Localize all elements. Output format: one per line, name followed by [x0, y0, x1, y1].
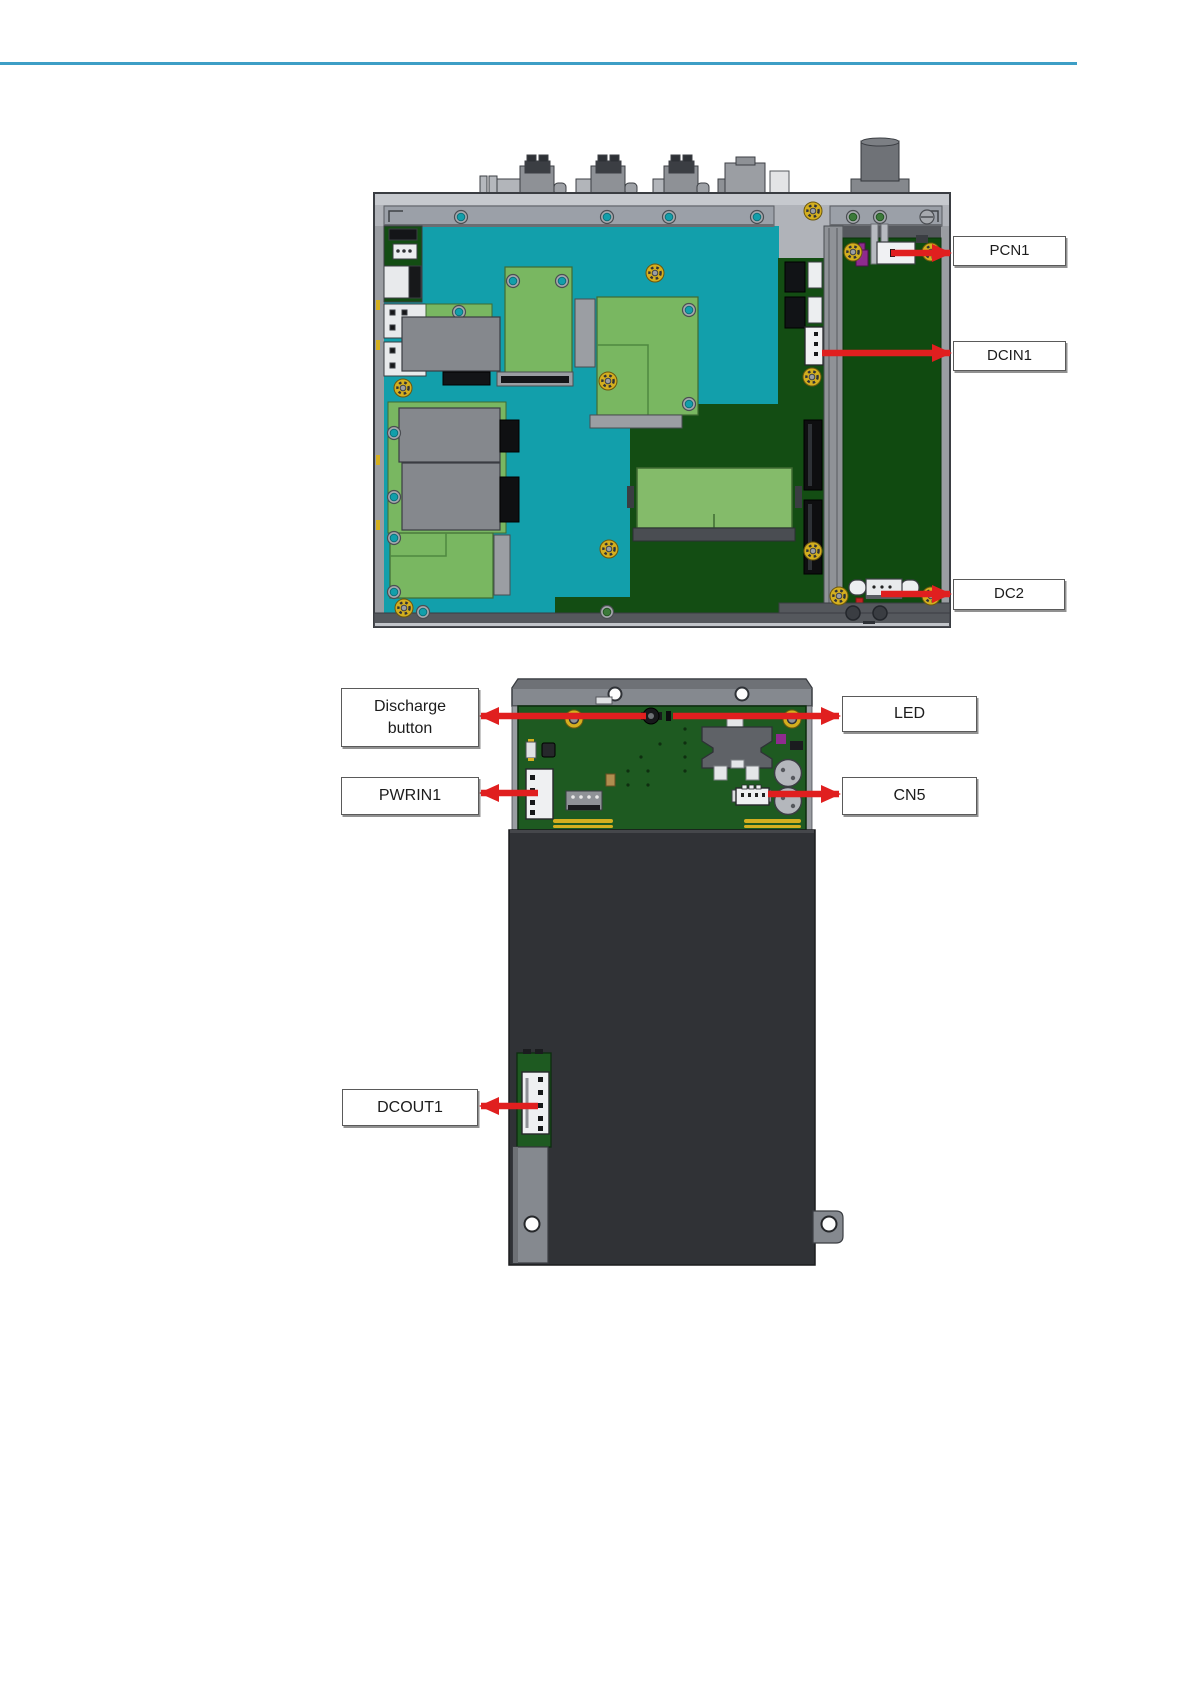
chassis-top-illustration: [0, 0, 1191, 660]
mounting-bracket-left: [513, 1147, 548, 1263]
power-board: [843, 224, 941, 608]
dcin1-connector: [805, 327, 823, 365]
callout-pwrin1: PWRIN1: [341, 777, 479, 815]
dcout1-board: [517, 1049, 551, 1147]
led-component: [666, 711, 671, 721]
cn5-connector: [732, 785, 771, 805]
figure-chassis-top-view: PCN1 DCIN1 DC2: [0, 0, 1191, 660]
callout-pcn1: PCN1: [953, 236, 1066, 266]
battery-module-illustration: [0, 660, 1191, 1300]
mounting-bracket-top: [512, 679, 812, 706]
right-side-wall: [806, 706, 812, 830]
callout-dcin1: DCIN1: [953, 341, 1066, 371]
figure-battery-module: Discharge button LED PWRIN1 CN5 DCOUT1: [0, 660, 1191, 1300]
callout-dcout1: DCOUT1: [342, 1089, 478, 1126]
battery-pack: [509, 830, 815, 1265]
purple-component: [776, 734, 786, 744]
callout-discharge-button: Discharge button: [341, 688, 479, 747]
manual-page: PCN1 DCIN1 DC2: [0, 0, 1191, 1684]
heatsink-modules: [388, 304, 520, 599]
left-side-wall: [512, 706, 518, 830]
memory-module: [627, 468, 802, 541]
callout-dc2: DC2: [953, 579, 1065, 610]
callout-cn5: CN5: [842, 777, 977, 815]
callout-led: LED: [842, 696, 977, 732]
aux-connector: [566, 791, 602, 810]
rear-io-connectors: [480, 138, 909, 196]
compartment-divider: [824, 226, 843, 615]
mounting-ear-right: [813, 1211, 843, 1243]
top-mounting-bar: [384, 206, 942, 227]
